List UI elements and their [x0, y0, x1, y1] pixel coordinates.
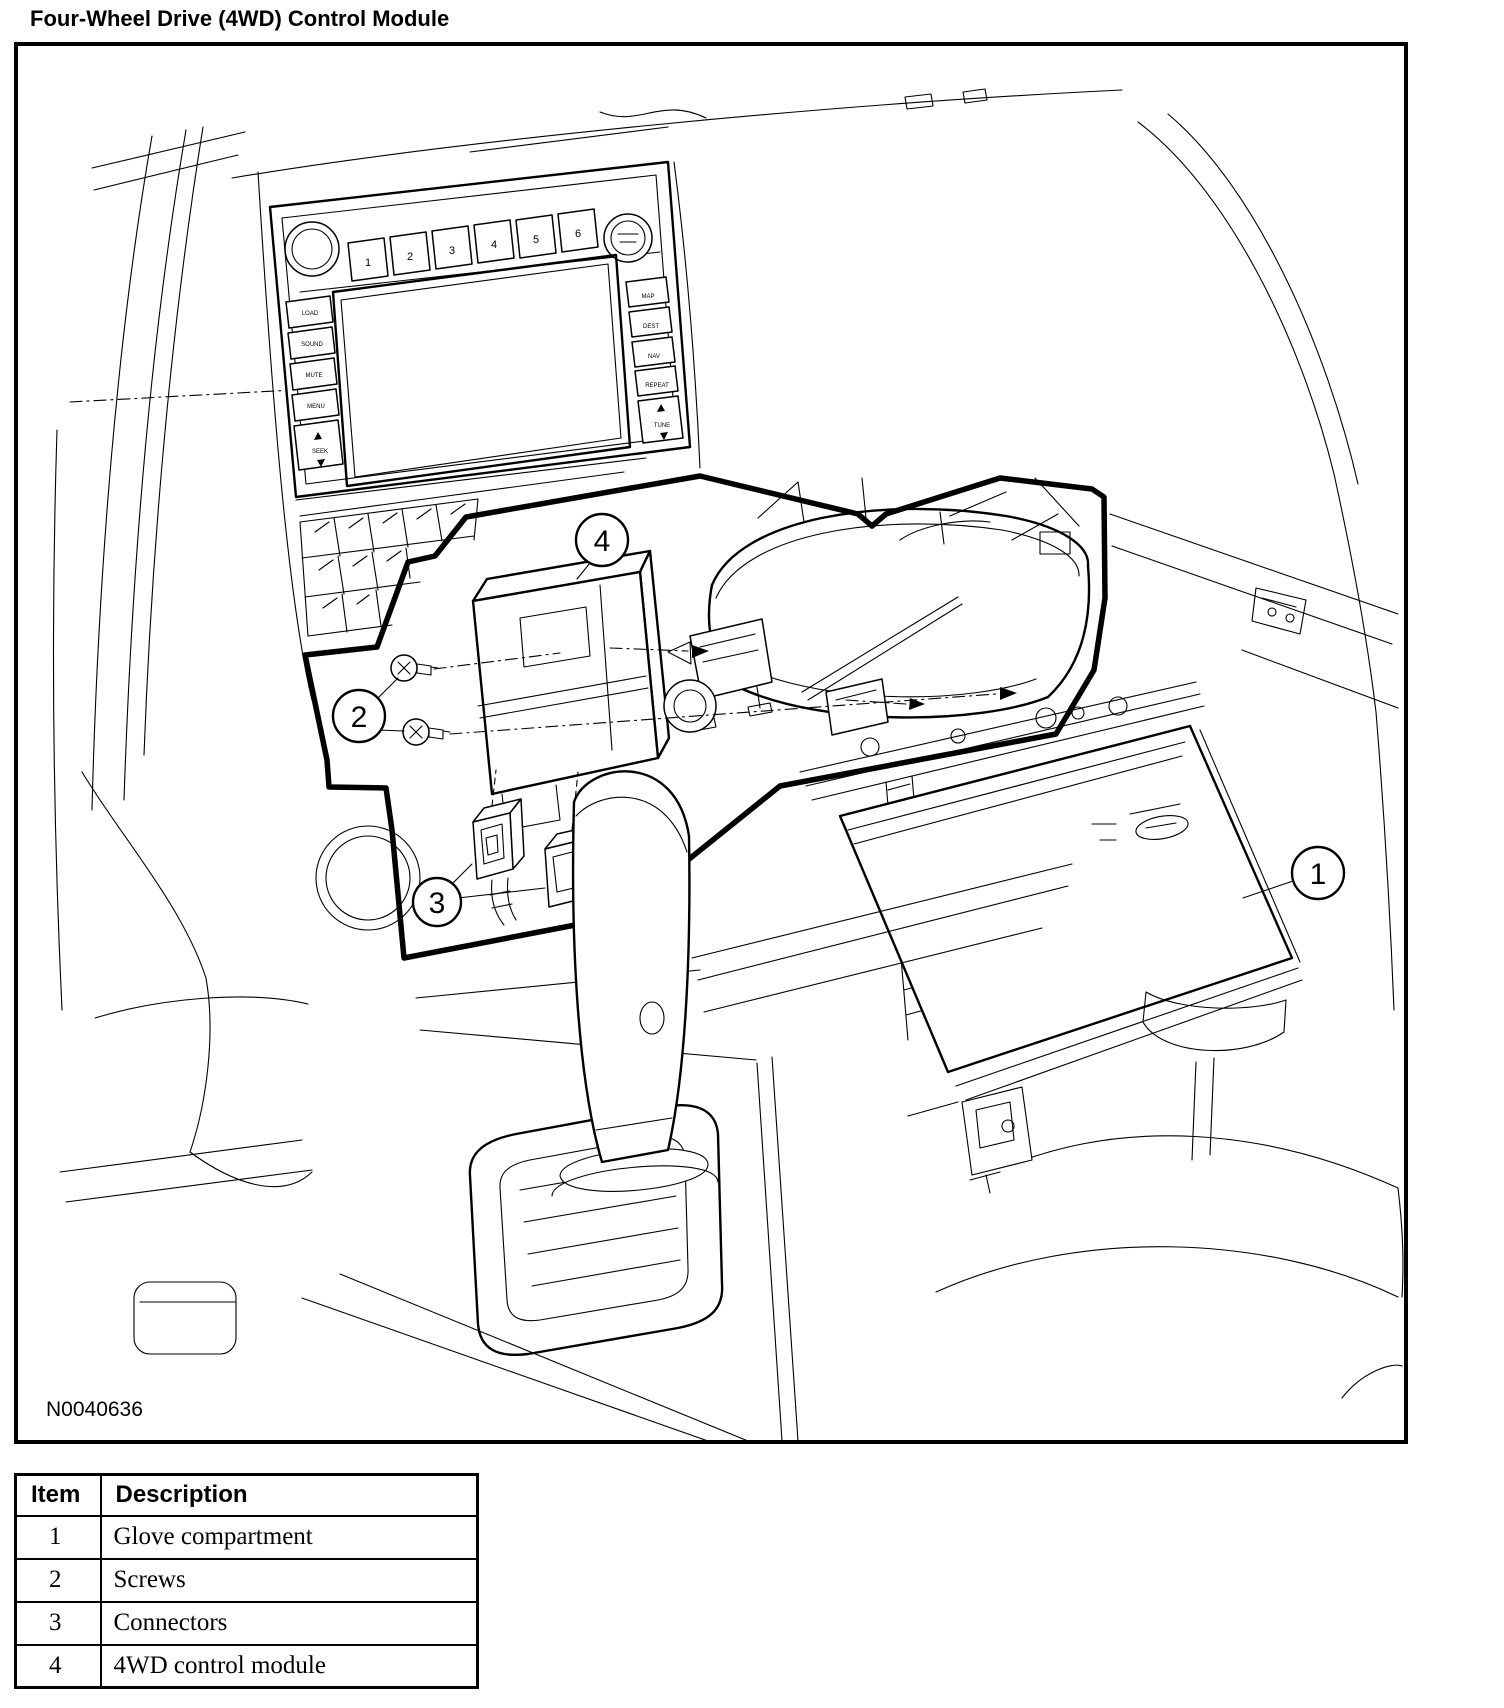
- glove-latch: [908, 1087, 1032, 1193]
- map-button-label: MAP: [641, 294, 654, 300]
- parts-table: Item Description 1 Glove compartment 2 S…: [14, 1473, 479, 1689]
- glove-door: [840, 726, 1292, 1072]
- radio-unit: 1 2 3 4 5 6 LOAD SOUND MUTE MENU SEEK: [270, 162, 690, 516]
- callout-1-number: 1: [1310, 858, 1327, 891]
- callout-3-number: 3: [429, 887, 446, 920]
- preset-3: 3: [449, 245, 455, 257]
- item-number: 4: [16, 1645, 101, 1688]
- tune-button-label: TUNE: [654, 423, 670, 429]
- arrow-right-icon: [1000, 687, 1017, 700]
- preset-2: 2: [407, 251, 413, 263]
- item-number: 2: [16, 1559, 101, 1602]
- seek-button-label: SEEK: [312, 449, 328, 455]
- page-title: Four-Wheel Drive (4WD) Control Module: [30, 6, 449, 32]
- figure-frame: 1 2 3 4 5 6 LOAD SOUND MUTE MENU SEEK: [14, 42, 1408, 1444]
- callout-2-number: 2: [351, 701, 368, 734]
- item-description: 4WD control module: [101, 1645, 478, 1688]
- volume-knob: [285, 222, 339, 276]
- table-row: 4 4WD control module: [16, 1645, 478, 1688]
- callout-2: 2: [333, 690, 385, 742]
- table-header-row: Item Description: [16, 1475, 478, 1516]
- table-row: 2 Screws: [16, 1559, 478, 1602]
- dest-button-label: DEST: [643, 324, 659, 330]
- figure-id: N0040636: [46, 1398, 143, 1421]
- module-boss: [664, 680, 716, 732]
- table-row: 3 Connectors: [16, 1602, 478, 1645]
- menu-button-label: MENU: [307, 404, 325, 410]
- preset-6: 6: [575, 228, 581, 240]
- callout-3: 3: [413, 878, 461, 926]
- callout-1: 1: [1292, 847, 1344, 899]
- table-row: 1 Glove compartment: [16, 1516, 478, 1559]
- description-column-header: Description: [101, 1475, 478, 1516]
- panel-cup-opening: [316, 826, 420, 930]
- item-column-header: Item: [16, 1475, 101, 1516]
- load-button-label: LOAD: [302, 311, 319, 317]
- nav-button-label: NAV: [648, 354, 660, 360]
- callout-4-number: 4: [594, 525, 611, 558]
- item-description: Glove compartment: [101, 1516, 478, 1559]
- item-number: 3: [16, 1602, 101, 1645]
- illustration: 1 2 3 4 5 6 LOAD SOUND MUTE MENU SEEK: [18, 46, 1404, 1440]
- preset-1: 1: [365, 257, 371, 269]
- callout-4: 4: [576, 514, 628, 566]
- sound-button-label: SOUND: [301, 342, 323, 348]
- item-description: Connectors: [101, 1602, 478, 1645]
- preset-4: 4: [491, 239, 497, 251]
- gear-shifter: [573, 771, 689, 1162]
- preset-5: 5: [533, 234, 539, 246]
- blower-housing: [668, 478, 1089, 735]
- mute-button-label: MUTE: [306, 373, 323, 379]
- item-description: Screws: [101, 1559, 478, 1602]
- repeat-button-label: REPEAT: [645, 383, 669, 389]
- glove-compartment: [800, 682, 1302, 1193]
- item-number: 1: [16, 1516, 101, 1559]
